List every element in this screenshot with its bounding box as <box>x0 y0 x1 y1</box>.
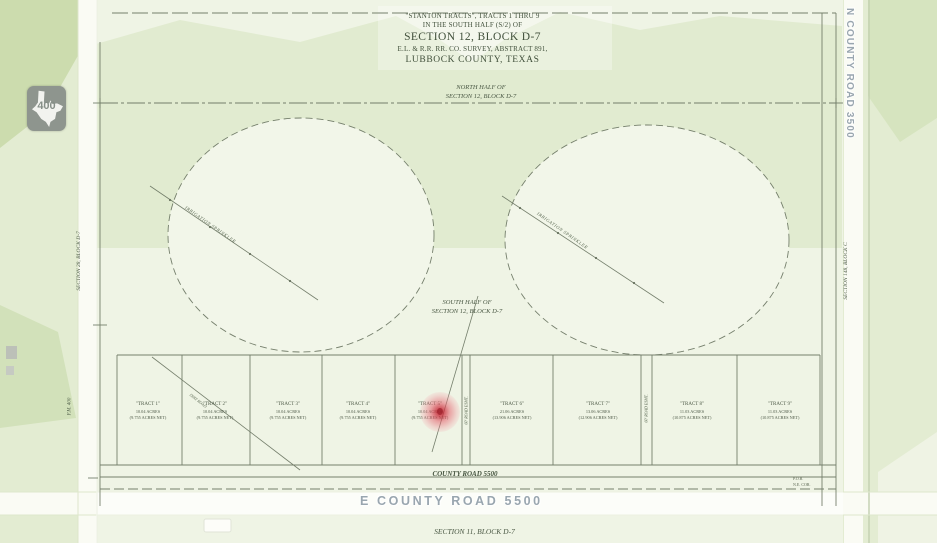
n-county-road-3500-map-label: N COUNTY ROAD 3500 <box>844 8 855 139</box>
map-canvas[interactable]: "STANTON TRACTS", TRACTS 1 THRU 9 IN THE… <box>0 0 937 543</box>
terrain-patch-bottom-right <box>878 432 937 543</box>
tract-label-8: "TRACT 8" 11.03 ACRES (10.875 ACRES NET) <box>660 402 724 420</box>
north-half-label: NORTH HALF OF SECTION 12, BLOCK D-7 <box>396 84 566 102</box>
section-11-label: SECTION 11, BLOCK D-7 <box>392 527 557 536</box>
county-road-5500-plat-label: COUNTY ROAD 5500 <box>395 470 535 478</box>
terrain-patch-top-right <box>868 0 937 142</box>
plat-map-artwork <box>0 0 937 543</box>
plat-title-line2: IN THE SOUTH HALF (S/2) OF <box>355 21 590 30</box>
texas-fm-shield-icon: 400 <box>27 86 66 131</box>
plat-title-line3: SECTION 12, BLOCK D-7 <box>355 31 590 45</box>
tract-label-9: "TRACT 9" 11.03 ACRES (10.875 ACRES NET) <box>748 402 812 420</box>
tract-label-2: "TRACT 2" 10.04 ACRES (9.755 ACRES NET) <box>183 402 247 420</box>
plat-sheet <box>96 0 843 543</box>
plat-title-line4: E.L. & R.R. RR. CO. SURVEY, ABSTRACT 891… <box>355 45 590 54</box>
plat-title-block: "STANTON TRACTS", TRACTS 1 THRU 9 IN THE… <box>355 12 590 66</box>
section-east-label: SECTION 148, BLOCK C <box>843 216 849 326</box>
tract-label-3: "TRACT 3" 10.04 ACRES (9.755 ACRES NET) <box>256 402 320 420</box>
south-half-label: SOUTH HALF OF SECTION 12, BLOCK D-7 <box>382 299 552 317</box>
e-county-road-5500-map-label: E COUNTY ROAD 5500 <box>360 494 543 508</box>
road-easement-label-right: 60' ROAD ESMT. <box>644 379 649 439</box>
plat-title-line5: LUBBOCK COUNTY, TEXAS <box>355 54 590 66</box>
highlight-marker[interactable] <box>420 392 460 432</box>
building <box>6 366 14 375</box>
corner-note: P.O.B. N.E. COR. <box>793 476 811 487</box>
plat-title-line1: "STANTON TRACTS", TRACTS 1 THRU 9 <box>355 12 590 21</box>
tract-label-4: "TRACT 4" 10.04 ACRES (9.755 ACRES NET) <box>326 402 390 420</box>
tract-label-6: "TRACT 6" 21.06 ACRES (13.906 ACRES NET) <box>480 402 544 420</box>
road-easement-label-left: 60' ROAD ESMT. <box>464 381 469 441</box>
tract-label-7: "TRACT 7" 13.06 ACRES (12.906 ACRES NET) <box>566 402 630 420</box>
map-badge <box>204 519 231 532</box>
building <box>6 346 17 359</box>
fm400-plat-label: F.M. 400 <box>68 385 73 429</box>
section-west-label: SECTION 28, BLOCK D-7 <box>76 206 82 316</box>
tract-label-1: "TRACT 1" 10.04 ACRES (9.755 ACRES NET) <box>116 402 180 420</box>
shield-route-number: 400 <box>27 100 66 112</box>
